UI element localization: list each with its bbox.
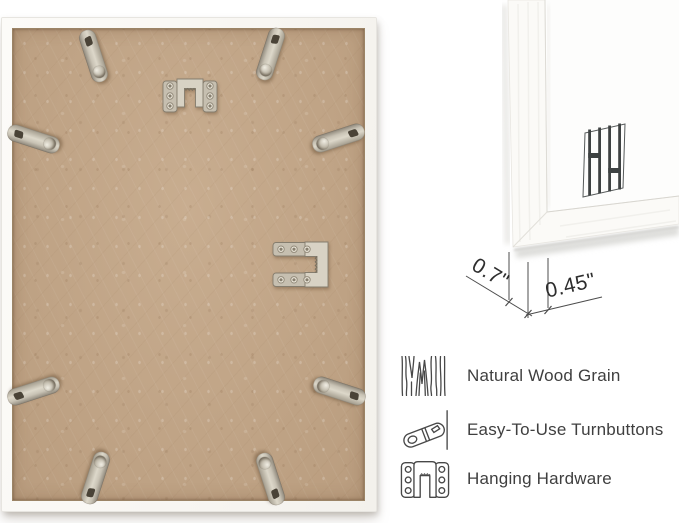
frame-corner-detail: 0.7" 0.45" — [430, 0, 679, 345]
sawtooth-hanger-top — [162, 78, 218, 114]
feature-label-wood-grain: Natural Wood Grain — [467, 366, 621, 386]
face-dimension-label: 0.45" — [543, 269, 598, 303]
feature-row-wood-grain: Natural Wood Grain — [400, 353, 621, 399]
sawtooth-hanger-center — [272, 241, 330, 288]
frame-front-surface — [545, 0, 679, 212]
feature-label-turnbuttons: Easy-To-Use Turnbuttons — [467, 420, 663, 440]
depth-dimension-label: 0.7" — [468, 254, 513, 294]
feature-row-hanging-hardware: Hanging Hardware — [400, 456, 612, 502]
wood-grain-icon — [400, 356, 450, 396]
product-image: 0.7" 0.45" Natural Wood Grain — [0, 0, 679, 523]
turnbutton-icon — [400, 407, 450, 453]
hanger-holes — [278, 246, 310, 283]
feature-label-hanging-hardware: Hanging Hardware — [467, 469, 612, 489]
feature-row-turnbuttons: Easy-To-Use Turnbuttons — [400, 407, 663, 453]
hanging-hardware-icon — [400, 456, 450, 502]
